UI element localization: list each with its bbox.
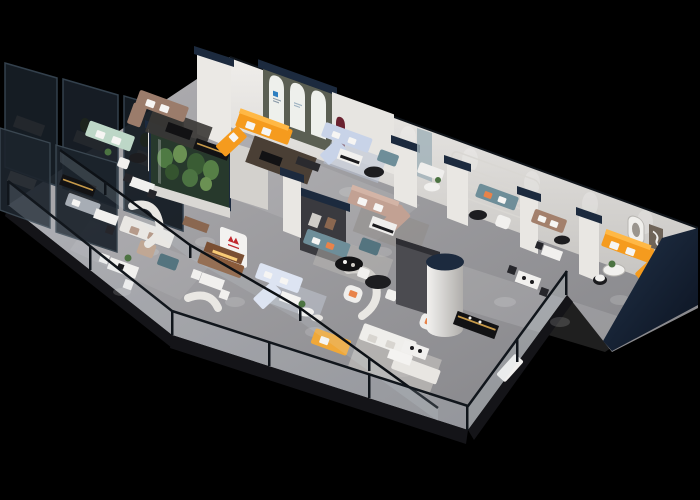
pillar bbox=[444, 155, 471, 226]
pillar bbox=[391, 135, 420, 208]
isometric-floorplan-render bbox=[0, 0, 700, 500]
pillar bbox=[280, 167, 304, 238]
showroom-scene bbox=[0, 0, 700, 500]
pillar bbox=[576, 207, 602, 282]
